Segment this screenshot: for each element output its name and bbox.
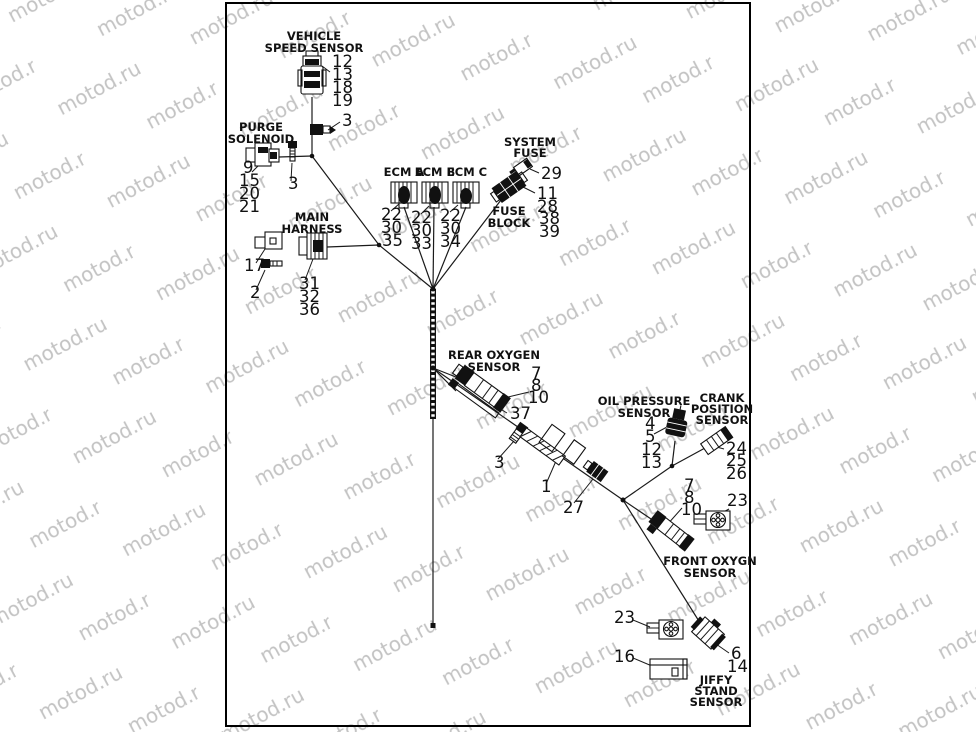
main-harness-icon	[299, 233, 327, 259]
callout-23-front: 23	[727, 491, 748, 510]
callout-14: 14	[727, 657, 748, 676]
callout-3-purge: 3	[288, 174, 299, 193]
harness-diagram-page: motod.ru motod.ru	[0, 0, 976, 732]
callout-19: 19	[332, 91, 353, 110]
connector-16-icon	[650, 659, 687, 679]
callout-ecm-c-34: 34	[440, 232, 461, 251]
callout-2: 2	[250, 283, 261, 302]
label-system-fuse: FUSE	[513, 146, 546, 160]
callout-23-bottom: 23	[614, 608, 635, 627]
label-crank-position-sensor: SENSOR	[696, 413, 749, 427]
callout-rear-10: 10	[528, 388, 549, 407]
label-ecm-c: ECM C	[447, 165, 487, 179]
callout-1: 1	[541, 477, 552, 496]
callout-front-10: 10	[681, 500, 702, 519]
callout-ecm-b-33: 33	[411, 234, 432, 253]
label-main-harness: HARNESS	[282, 222, 343, 236]
callout-21: 21	[239, 197, 260, 216]
callout-ecm-a-35: 35	[382, 231, 403, 250]
callout-17: 17	[244, 256, 265, 275]
callout-27: 27	[563, 498, 584, 517]
label-fuse-block: BLOCK	[488, 216, 532, 230]
callout-29: 29	[541, 164, 562, 183]
callout-36: 36	[299, 300, 320, 319]
callout-oil-13: 13	[641, 453, 662, 472]
label-jiffy-stand-sensor: SENSOR	[690, 695, 743, 709]
label-purge-solenoid: SOLENOID	[228, 132, 294, 146]
callout-37: 37	[510, 404, 531, 423]
callout-26: 26	[726, 464, 747, 483]
callout-39: 39	[539, 222, 560, 241]
callout-16: 16	[614, 647, 635, 666]
label-front-oxygen-sensor: SENSOR	[684, 566, 737, 580]
callout-3-mid: 3	[494, 453, 505, 472]
callout-3-upper: 3	[342, 111, 353, 130]
wiring-harness-diagram: motod.ru motod.ru	[0, 0, 976, 732]
label-rear-oxygen-sensor: SENSOR	[468, 360, 521, 374]
wire-end-dot	[431, 623, 436, 628]
